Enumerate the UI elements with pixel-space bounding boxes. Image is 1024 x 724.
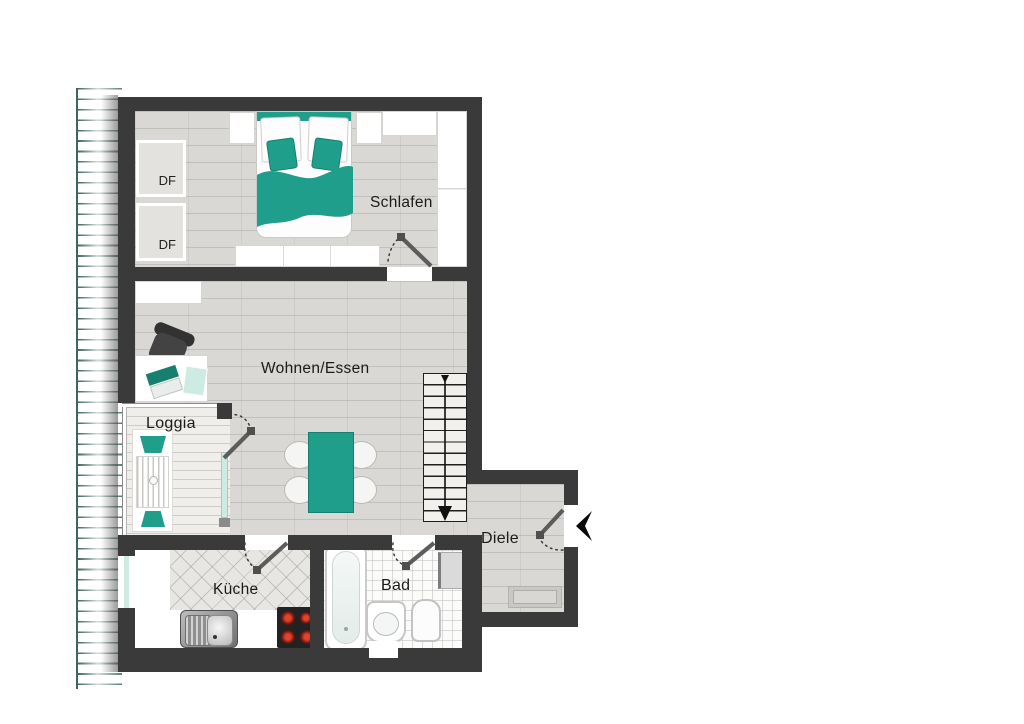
bedroom-label: Schlafen — [370, 195, 433, 211]
lounger-knob — [149, 476, 158, 485]
bed-cushion-right — [311, 137, 343, 172]
burner — [281, 630, 295, 644]
wall-hall-right-a — [564, 484, 578, 505]
kitchen-floor — [170, 550, 318, 610]
wall-hall-top — [467, 470, 578, 484]
wall-kitchen-bath — [310, 550, 324, 648]
paper-sheet — [182, 366, 208, 397]
nightstand-right — [356, 112, 382, 144]
roof-window-2-label: DF — [159, 237, 183, 258]
toilet — [411, 599, 441, 642]
wall-living-a — [122, 535, 245, 550]
bathtub — [325, 544, 367, 651]
bathtub-drain — [344, 627, 348, 631]
lounger-head-cushion — [140, 436, 166, 453]
window-glass — [124, 556, 129, 608]
wardrobe — [437, 111, 467, 267]
loggia-glass-door — [221, 452, 228, 518]
sideboard — [235, 245, 380, 267]
wall-top — [118, 97, 482, 111]
wall-left-upper — [118, 97, 135, 403]
roof-window-1: DF — [136, 140, 186, 197]
wall-loggia-stub — [217, 403, 232, 419]
lounger-foot-cushion — [141, 511, 165, 527]
sideboard-divider — [283, 246, 284, 266]
nightstand-left — [229, 112, 255, 144]
burner — [281, 611, 295, 625]
wall-living-b — [288, 535, 392, 550]
loggia-side-rail — [122, 407, 127, 535]
wall-right — [467, 97, 482, 470]
sideboard-divider — [330, 246, 331, 266]
roof-window-2: DF — [136, 203, 186, 261]
kitchen-label: Küche — [213, 582, 258, 598]
double-bed — [256, 111, 352, 238]
wall-bedroom-b — [432, 267, 482, 281]
shelf — [135, 281, 202, 304]
dresser — [382, 111, 437, 136]
kitchen-sink — [180, 610, 238, 648]
wall-bedroom-a — [135, 267, 387, 281]
wall-hall-bottom — [462, 612, 578, 627]
hall-label: Diele — [481, 531, 519, 547]
window-bath-bottom — [369, 641, 398, 658]
doormat-inner — [513, 590, 557, 604]
bed-blanket — [257, 161, 353, 239]
living-label: Wohnen/Essen — [261, 361, 369, 377]
doormat — [508, 586, 562, 608]
bed-cushion-left — [266, 137, 298, 172]
wall-shadow — [101, 95, 118, 672]
sun-lounger — [132, 429, 173, 532]
loggia-front-rail — [122, 403, 230, 408]
entrance-arrow-icon — [576, 511, 592, 541]
shower-appliance — [438, 552, 463, 589]
wall-bath-right — [462, 547, 482, 648]
sink-basin — [207, 615, 233, 646]
window-left-wall — [118, 556, 135, 608]
wall-bottom — [118, 648, 482, 672]
washbasin-bowl — [373, 612, 399, 636]
loggia-door-post — [219, 518, 230, 527]
floor-plan: DF DF — [0, 0, 1024, 724]
washbasin — [366, 601, 406, 643]
loggia-label: Loggia — [146, 416, 196, 432]
dining-table — [308, 432, 354, 513]
roof-window-1-label: DF — [159, 173, 183, 194]
sink-drain-dot — [213, 635, 217, 639]
bath-label: Bad — [381, 578, 410, 594]
staircase — [423, 373, 467, 522]
